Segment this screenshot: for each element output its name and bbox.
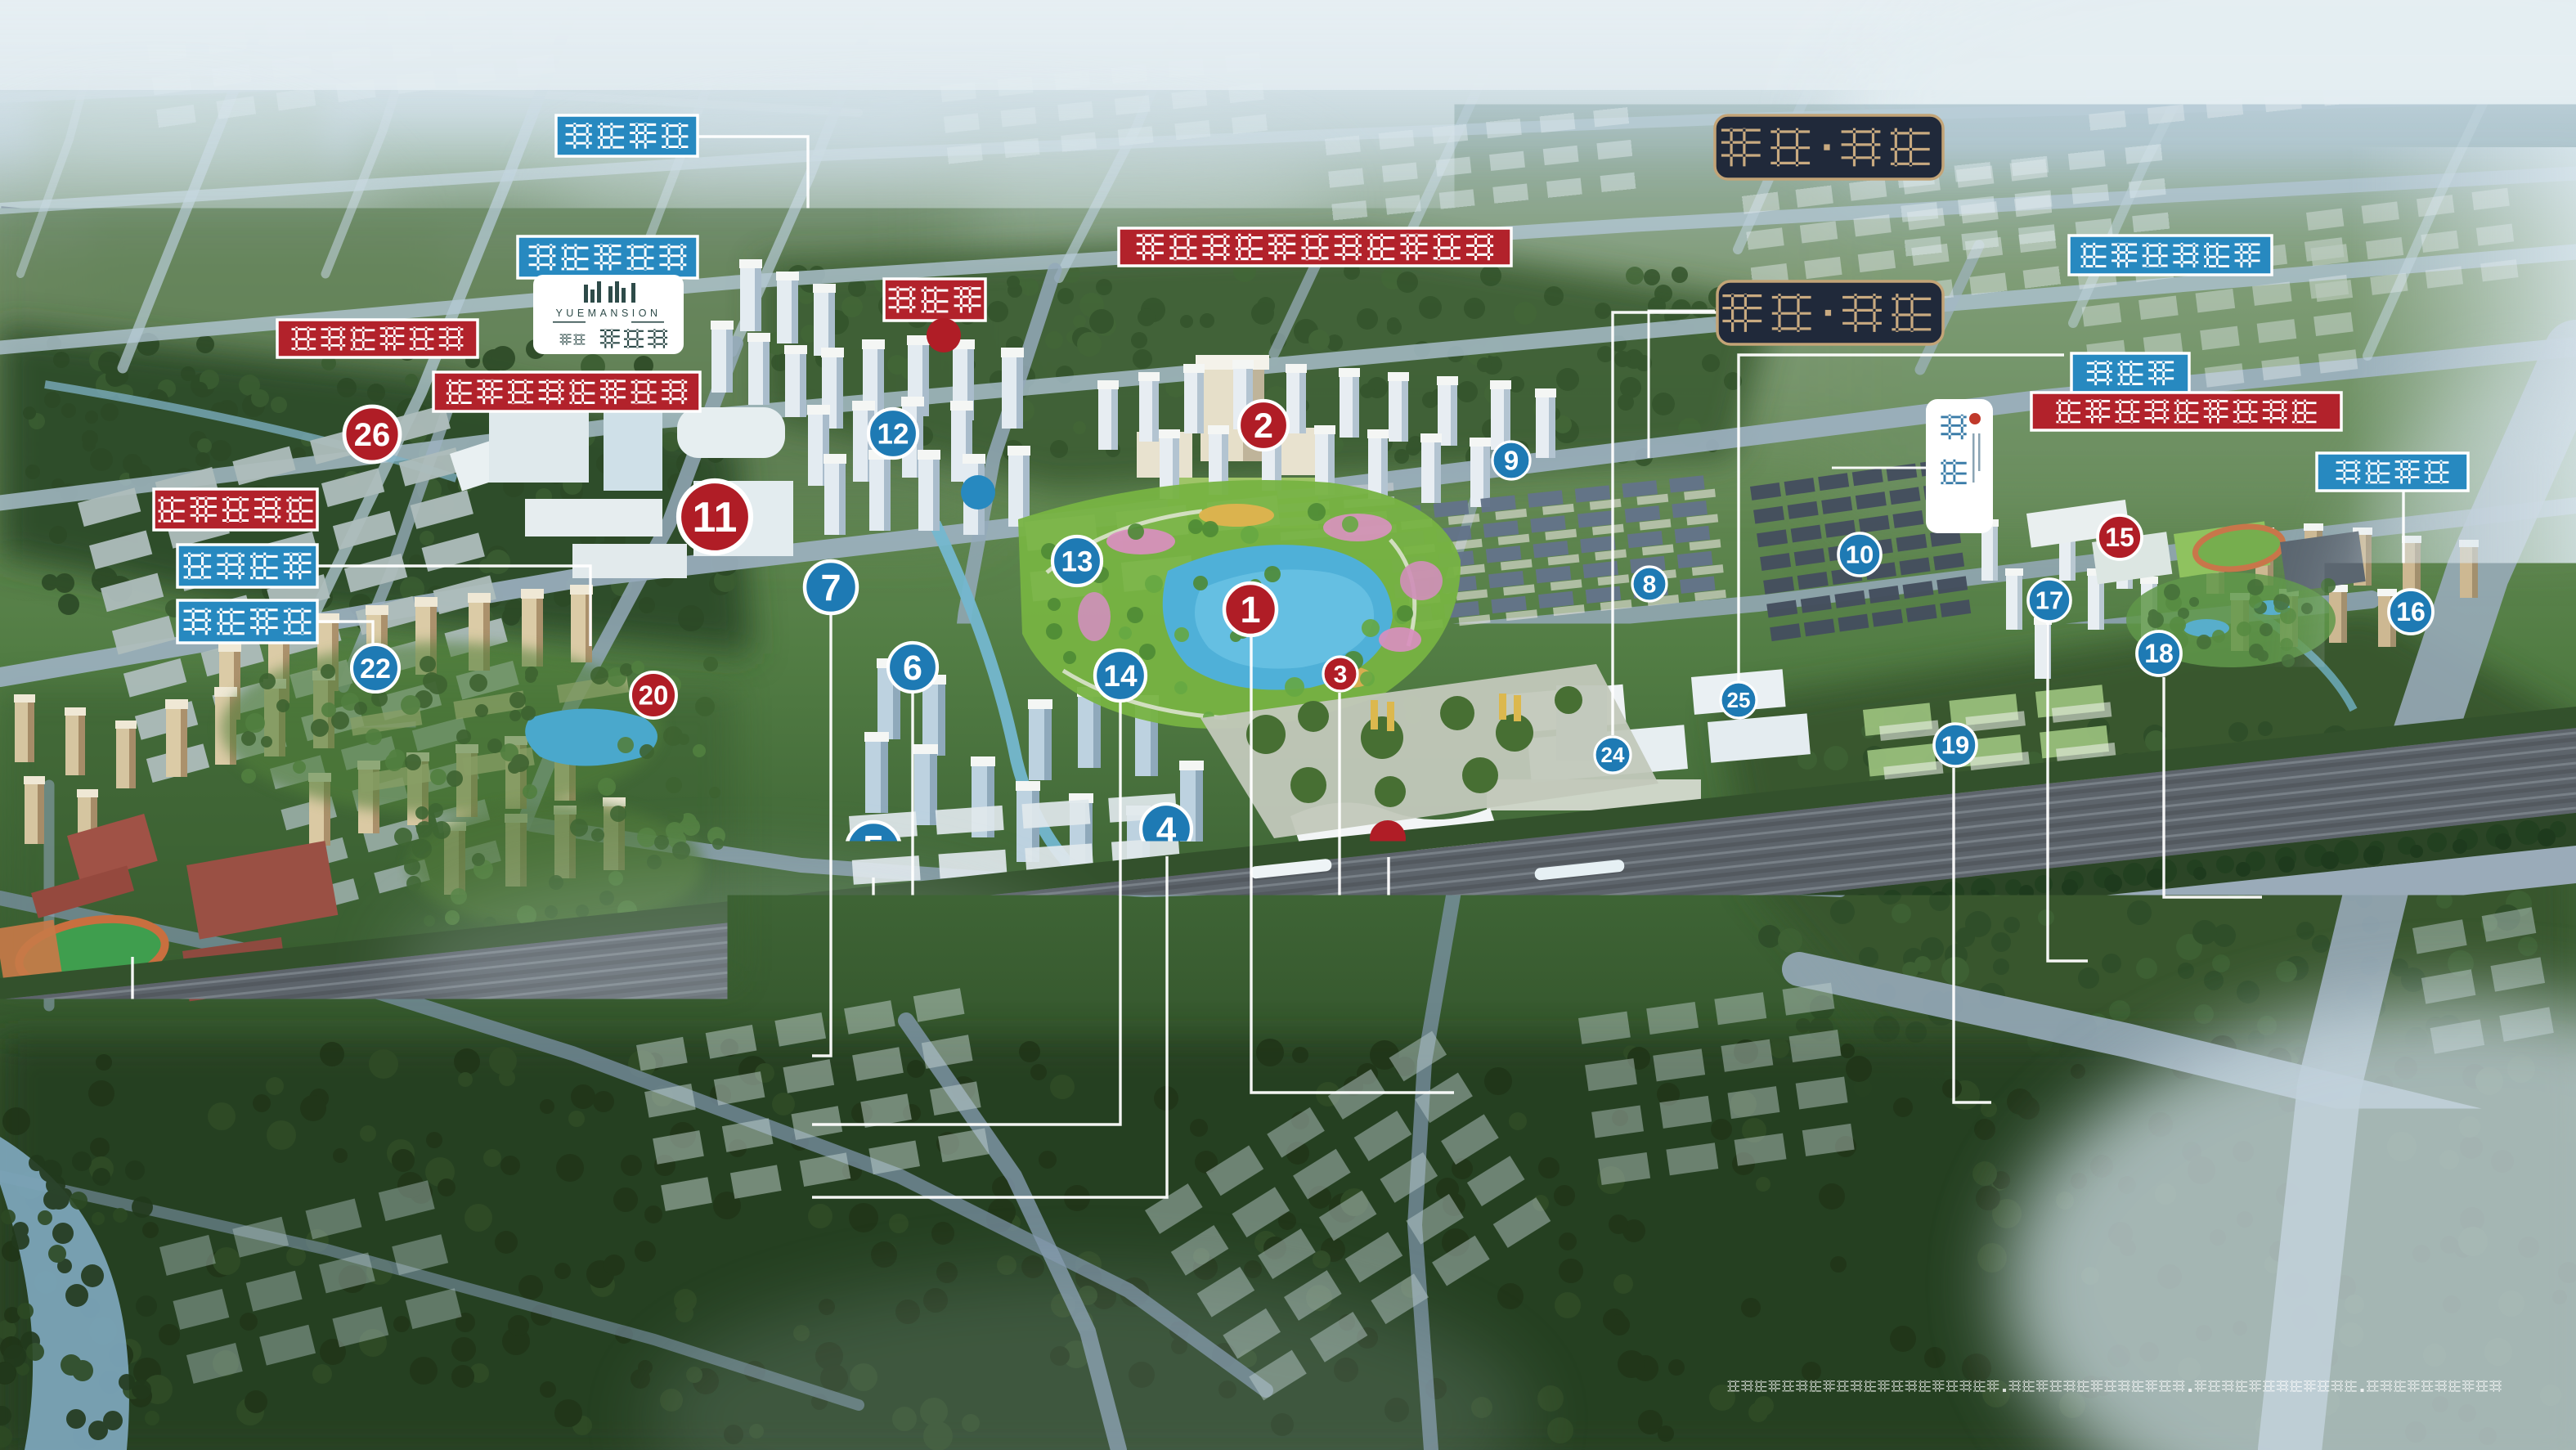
svg-text:24: 24 <box>1601 743 1625 767</box>
svg-text:9: 9 <box>1504 445 1519 475</box>
svg-text:15: 15 <box>2105 523 2134 552</box>
svg-text:1: 1 <box>1240 589 1260 631</box>
svg-text:12: 12 <box>877 418 909 450</box>
svg-text:20: 20 <box>639 680 669 711</box>
svg-text:2: 2 <box>1254 406 1273 446</box>
svg-text:5: 5 <box>863 827 884 870</box>
svg-text:16: 16 <box>2396 597 2426 626</box>
svg-text:18: 18 <box>2144 639 2174 668</box>
svg-text:14: 14 <box>1103 659 1138 693</box>
svg-text:6: 6 <box>903 649 922 688</box>
svg-text:25: 25 <box>1727 688 1751 712</box>
svg-text:23: 23 <box>112 903 153 945</box>
svg-text:8: 8 <box>1643 571 1657 598</box>
svg-text:21: 21 <box>528 854 559 885</box>
svg-text:4: 4 <box>1156 810 1177 850</box>
svg-text:11: 11 <box>693 494 738 541</box>
svg-text:19: 19 <box>1941 731 1969 760</box>
svg-text:10: 10 <box>1846 541 1874 569</box>
svg-text:22: 22 <box>360 653 391 685</box>
svg-text:17: 17 <box>2035 586 2063 615</box>
svg-text:7: 7 <box>820 567 841 608</box>
svg-text:13: 13 <box>1061 545 1093 577</box>
svg-text:YUEMANSION: YUEMANSION <box>555 308 661 319</box>
svg-text:3: 3 <box>1334 661 1348 688</box>
svg-text:26: 26 <box>354 417 391 453</box>
